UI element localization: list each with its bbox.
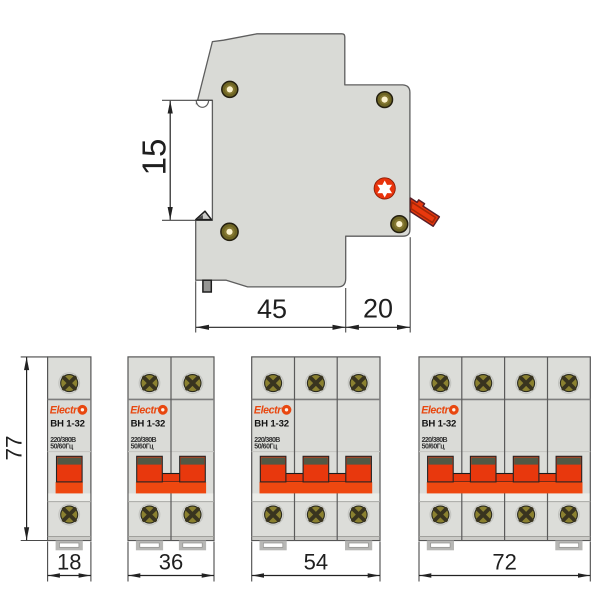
svg-text:15: 15 bbox=[136, 139, 173, 176]
svg-text:ВН 1-32: ВН 1-32 bbox=[131, 419, 166, 430]
svg-text:50/60Гц: 50/60Гц bbox=[131, 443, 155, 450]
svg-text:77: 77 bbox=[2, 435, 27, 460]
svg-text:ВН 1-32: ВН 1-32 bbox=[50, 419, 85, 430]
svg-text:Electr: Electr bbox=[421, 405, 449, 417]
svg-text:20: 20 bbox=[363, 294, 393, 324]
svg-text:54: 54 bbox=[304, 550, 328, 575]
svg-text:45: 45 bbox=[257, 294, 287, 324]
svg-text:ВН 1-32: ВН 1-32 bbox=[254, 419, 289, 430]
svg-text:Electr: Electr bbox=[254, 405, 282, 417]
svg-text:18: 18 bbox=[57, 550, 81, 575]
svg-text:36: 36 bbox=[159, 550, 183, 575]
svg-text:ВН 1-32: ВН 1-32 bbox=[422, 419, 457, 430]
svg-text:Electr: Electr bbox=[50, 405, 78, 417]
svg-text:50/60Гц: 50/60Гц bbox=[50, 443, 74, 450]
svg-text:72: 72 bbox=[492, 550, 516, 575]
svg-text:50/60Гц: 50/60Гц bbox=[254, 443, 278, 450]
svg-text:50/60Гц: 50/60Гц bbox=[422, 443, 446, 450]
svg-text:Electr: Electr bbox=[130, 405, 158, 417]
